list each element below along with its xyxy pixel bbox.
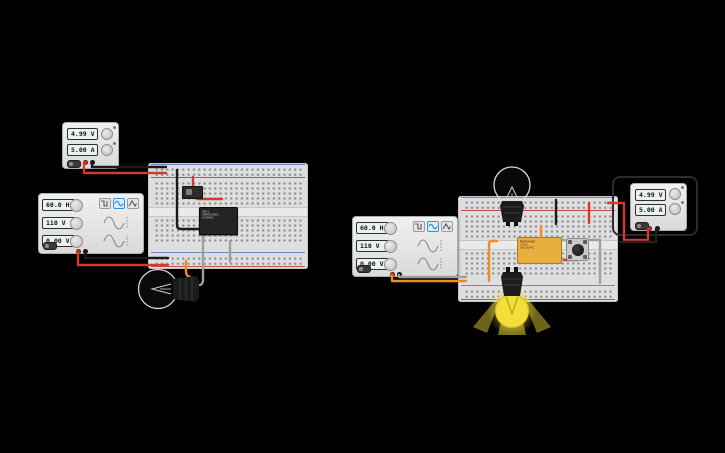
wire-segment bbox=[92, 162, 166, 167]
button-pin bbox=[568, 255, 572, 259]
relay-ic-black[interactable]: G5V-2 OMRON 5VDC 2A 30VDC bbox=[199, 207, 238, 235]
button-pin bbox=[583, 255, 587, 259]
socket-pin bbox=[514, 222, 518, 226]
wire-segment bbox=[608, 203, 648, 240]
bulb-socket bbox=[500, 201, 524, 222]
socket-pin bbox=[514, 267, 518, 273]
slide-switch[interactable] bbox=[182, 186, 203, 199]
wire-segment bbox=[85, 252, 168, 258]
button-pin bbox=[568, 240, 572, 244]
wire-segment bbox=[200, 233, 203, 285]
switch-slider bbox=[186, 189, 192, 195]
bulb-glass bbox=[496, 295, 529, 328]
pushbutton[interactable] bbox=[566, 238, 589, 261]
wire-segment bbox=[399, 275, 466, 277]
wire-segment bbox=[489, 241, 497, 281]
button-pin bbox=[583, 240, 587, 244]
wire-gray-chip-to-bulb[interactable] bbox=[200, 233, 203, 285]
wire-psu-black-to-rail[interactable] bbox=[92, 162, 166, 167]
relay-spdt-orange[interactable]: RX34-44-003 12VDC 16A 250VAC bbox=[517, 237, 562, 264]
wire-psu-red-to-board[interactable] bbox=[608, 203, 648, 240]
wire-orange-rail-to-bulb[interactable] bbox=[186, 261, 190, 277]
socket-pin bbox=[506, 267, 510, 273]
wire-fgen-black-to-rail[interactable] bbox=[85, 252, 168, 258]
chip-label: G5V-2 OMRON 5VDC 2A 30VDC bbox=[202, 210, 238, 219]
wire-orange-rail-to-relay[interactable] bbox=[489, 241, 497, 281]
lightbulb-top-off[interactable] bbox=[494, 167, 530, 226]
lightbulb-bottom-lit[interactable] bbox=[473, 267, 551, 336]
relay-label: RX34-44-003 12VDC 16A 250VAC bbox=[520, 240, 562, 249]
wire-segment bbox=[186, 261, 190, 277]
socket-pin bbox=[506, 222, 510, 226]
bulb-socket bbox=[501, 272, 523, 296]
button-cap[interactable] bbox=[572, 244, 584, 256]
wiring-overlay bbox=[0, 0, 725, 453]
bulb-glass bbox=[139, 270, 178, 309]
wire-fgen-gray-to-rail[interactable] bbox=[399, 275, 466, 277]
lightbulb-left-off[interactable] bbox=[139, 270, 200, 309]
circuit-canvas: 4.99 V 5.00 A 60.0 Hz 110 V 0.00 V bbox=[0, 0, 725, 453]
